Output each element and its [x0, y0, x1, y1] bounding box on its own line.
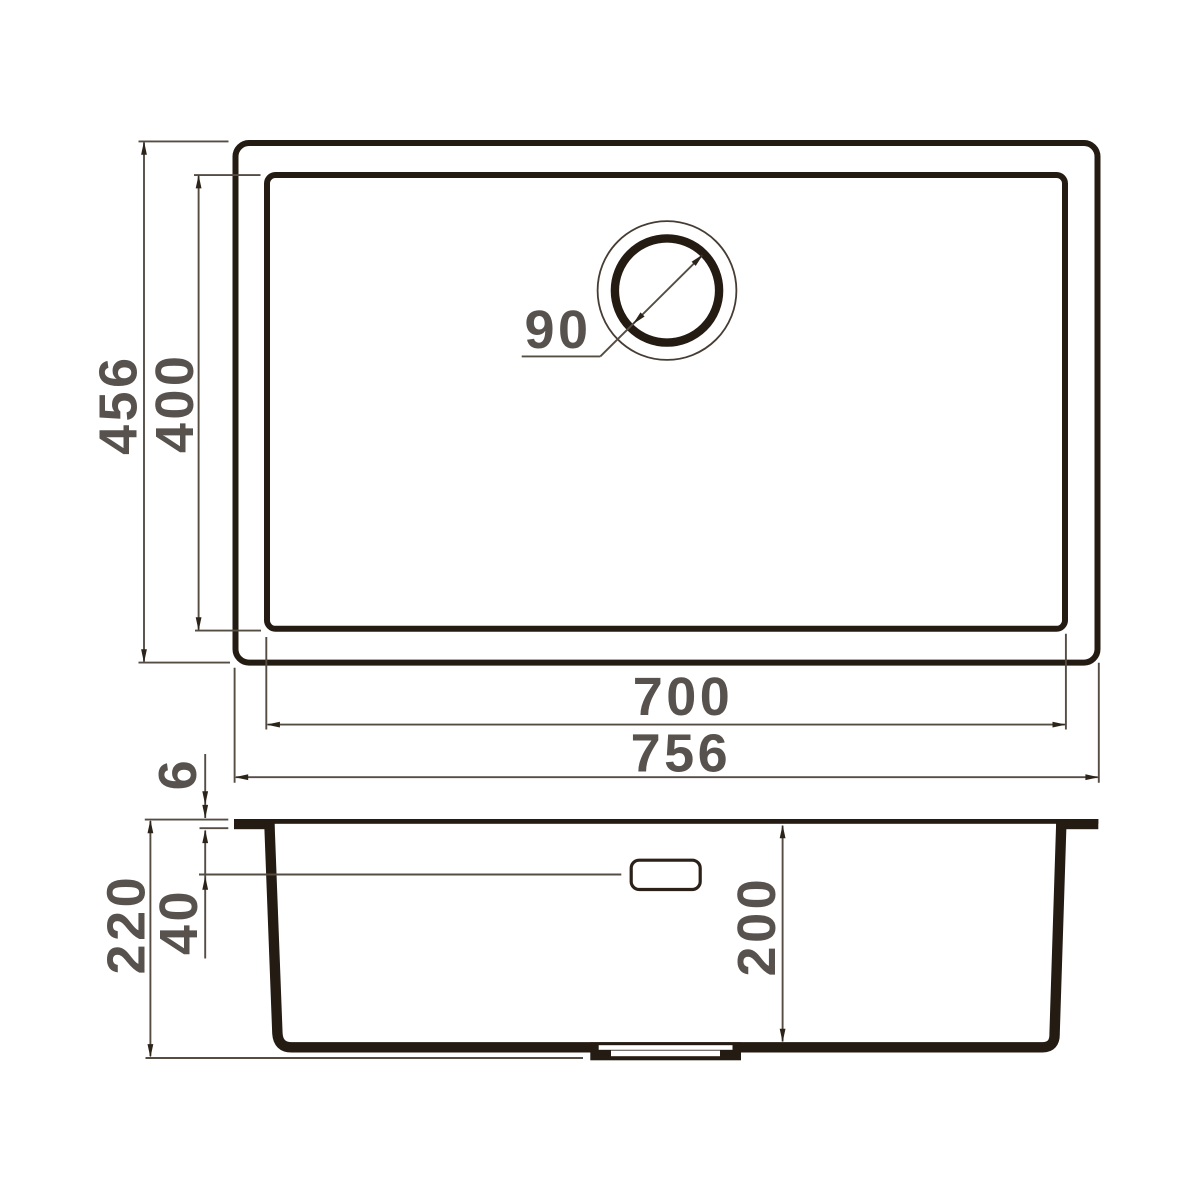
svg-text:456: 456 [88, 354, 148, 455]
svg-text:6: 6 [148, 757, 208, 791]
svg-text:40: 40 [149, 888, 209, 955]
svg-text:220: 220 [96, 874, 156, 975]
svg-text:700: 700 [633, 667, 734, 727]
svg-text:756: 756 [631, 723, 732, 783]
svg-text:90: 90 [524, 300, 591, 360]
svg-text:400: 400 [145, 353, 205, 454]
svg-text:200: 200 [727, 876, 787, 977]
